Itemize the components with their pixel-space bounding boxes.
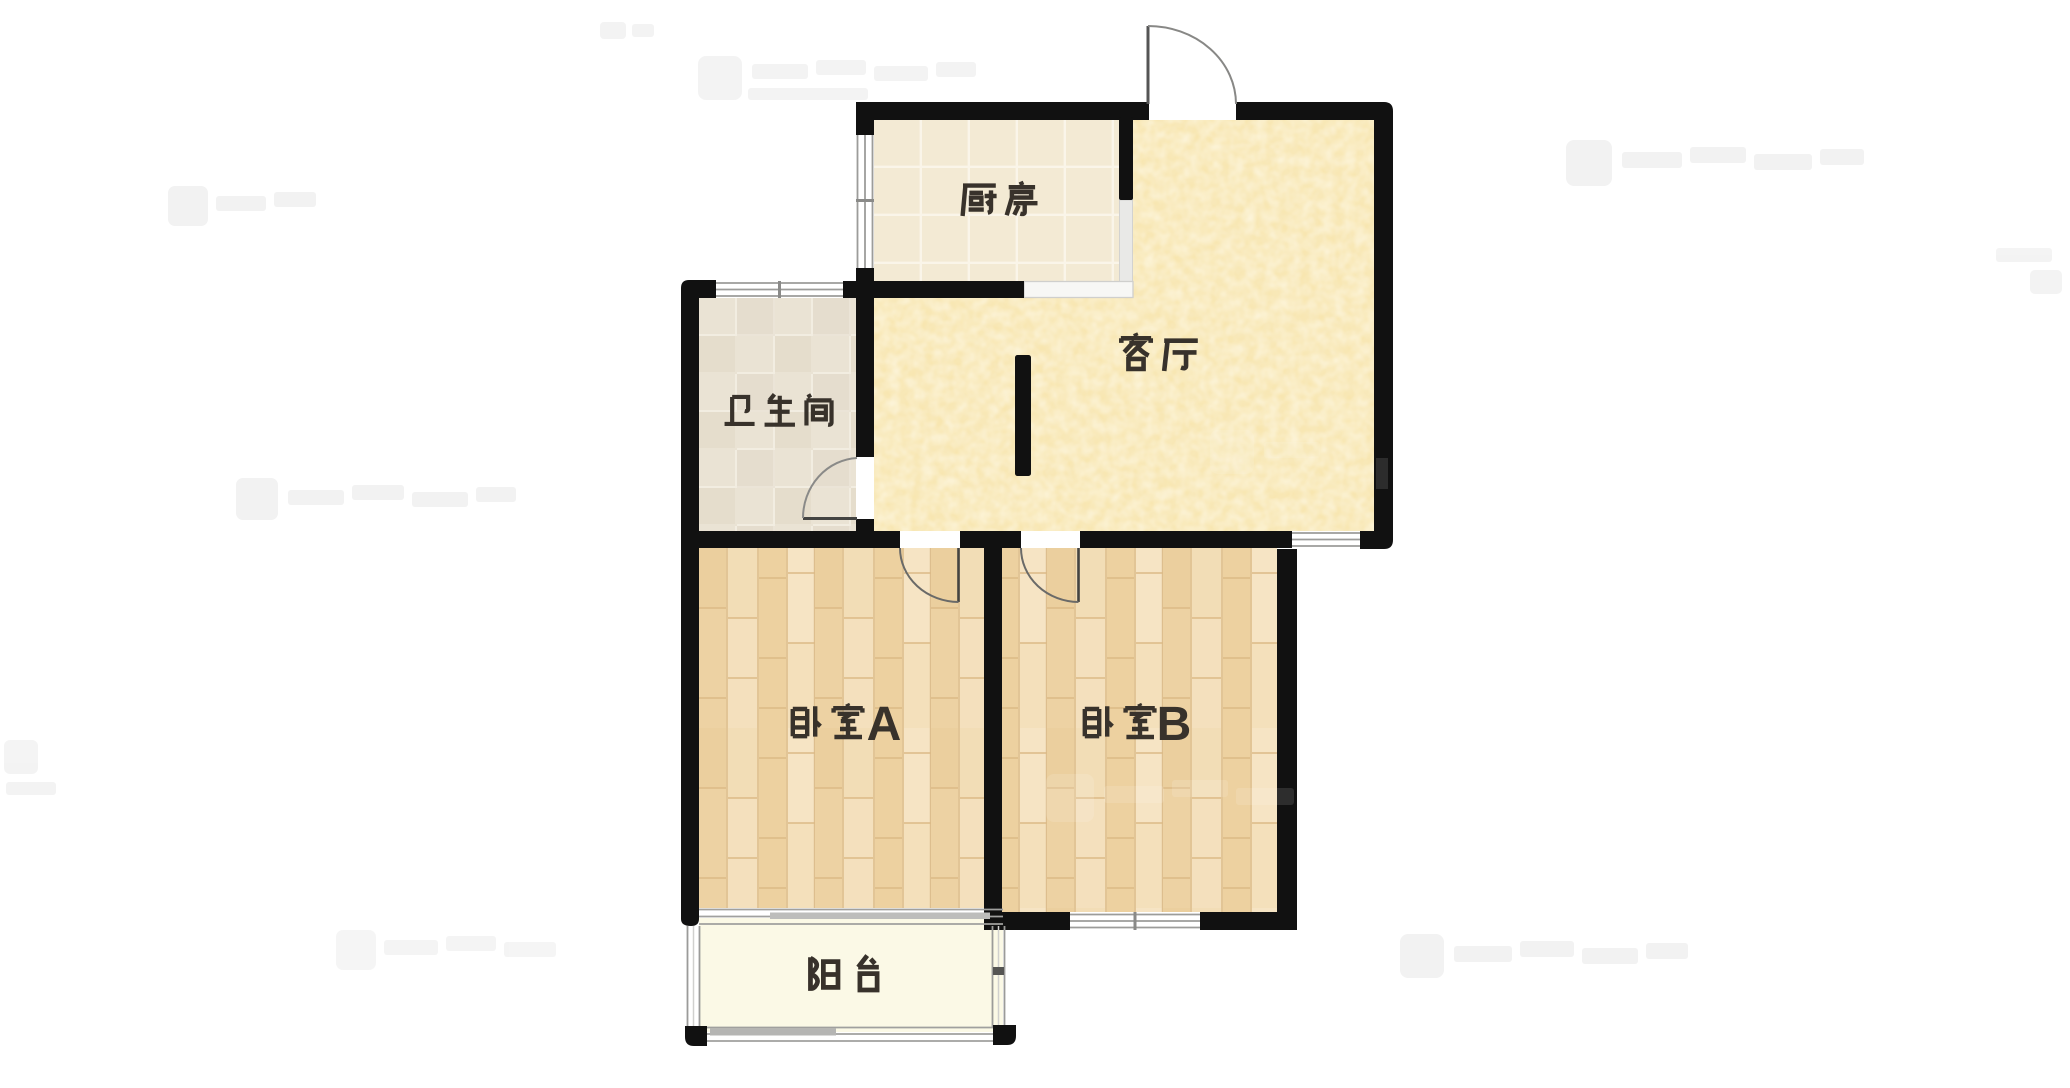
svg-text:A: A: [867, 698, 902, 751]
svg-text:B: B: [1157, 698, 1192, 751]
